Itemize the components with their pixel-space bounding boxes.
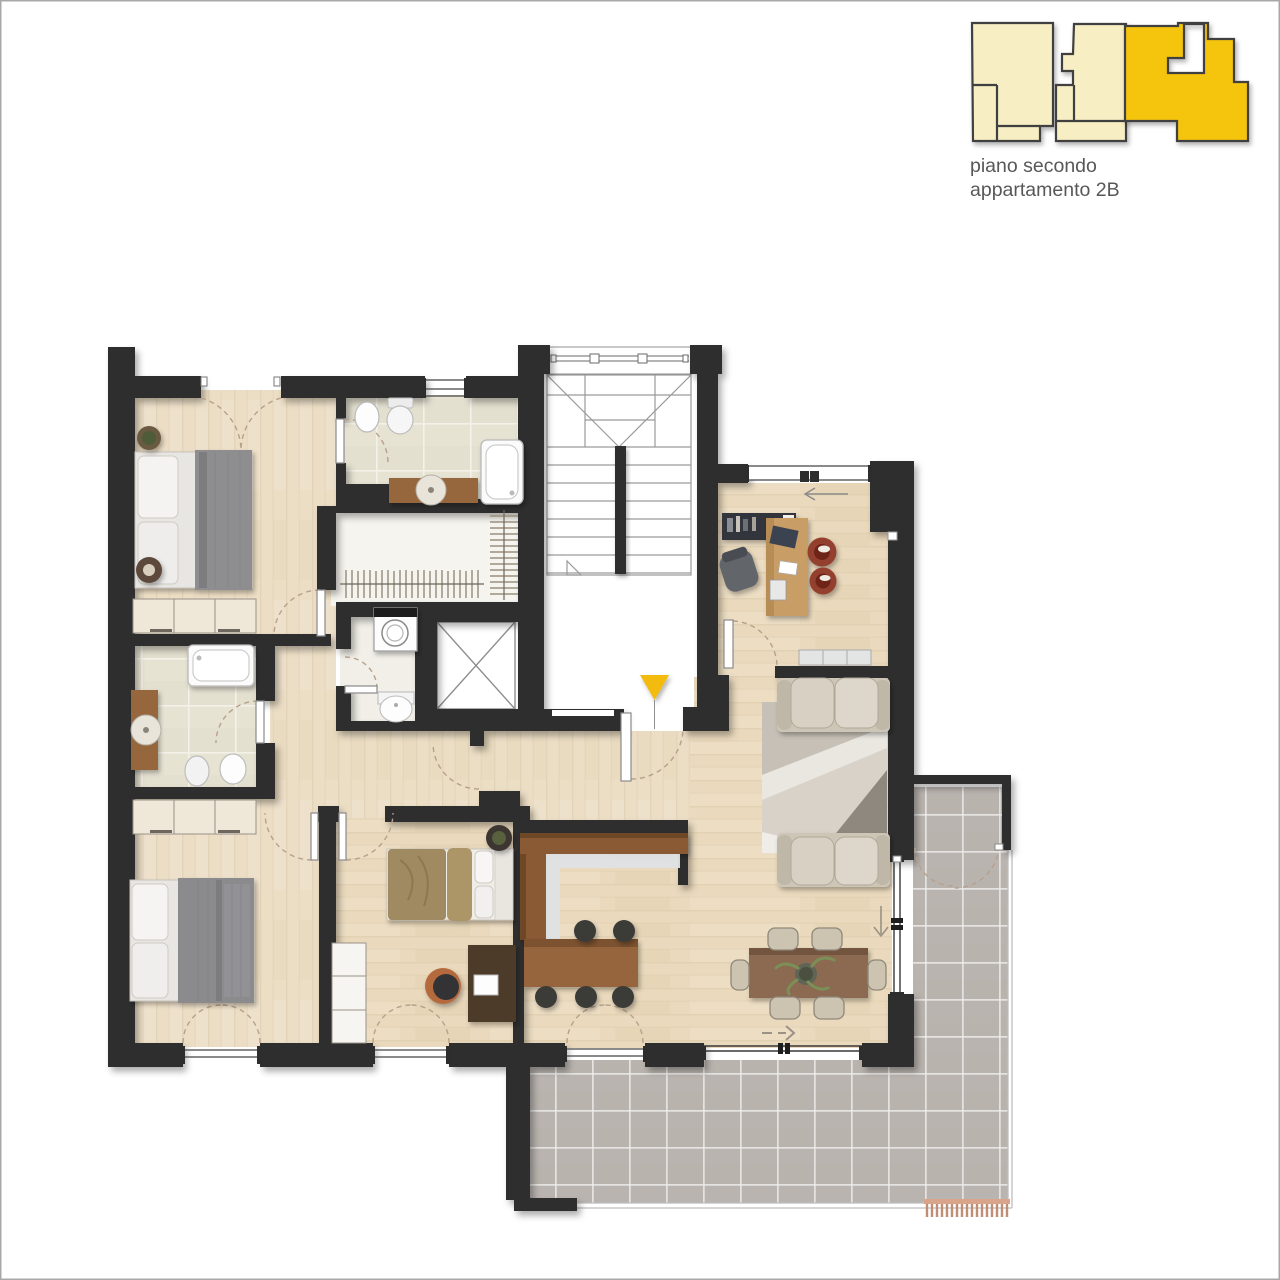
svg-text:piano secondo: piano secondo xyxy=(970,155,1097,177)
svg-text:appartamento 2B: appartamento 2B xyxy=(970,179,1120,201)
